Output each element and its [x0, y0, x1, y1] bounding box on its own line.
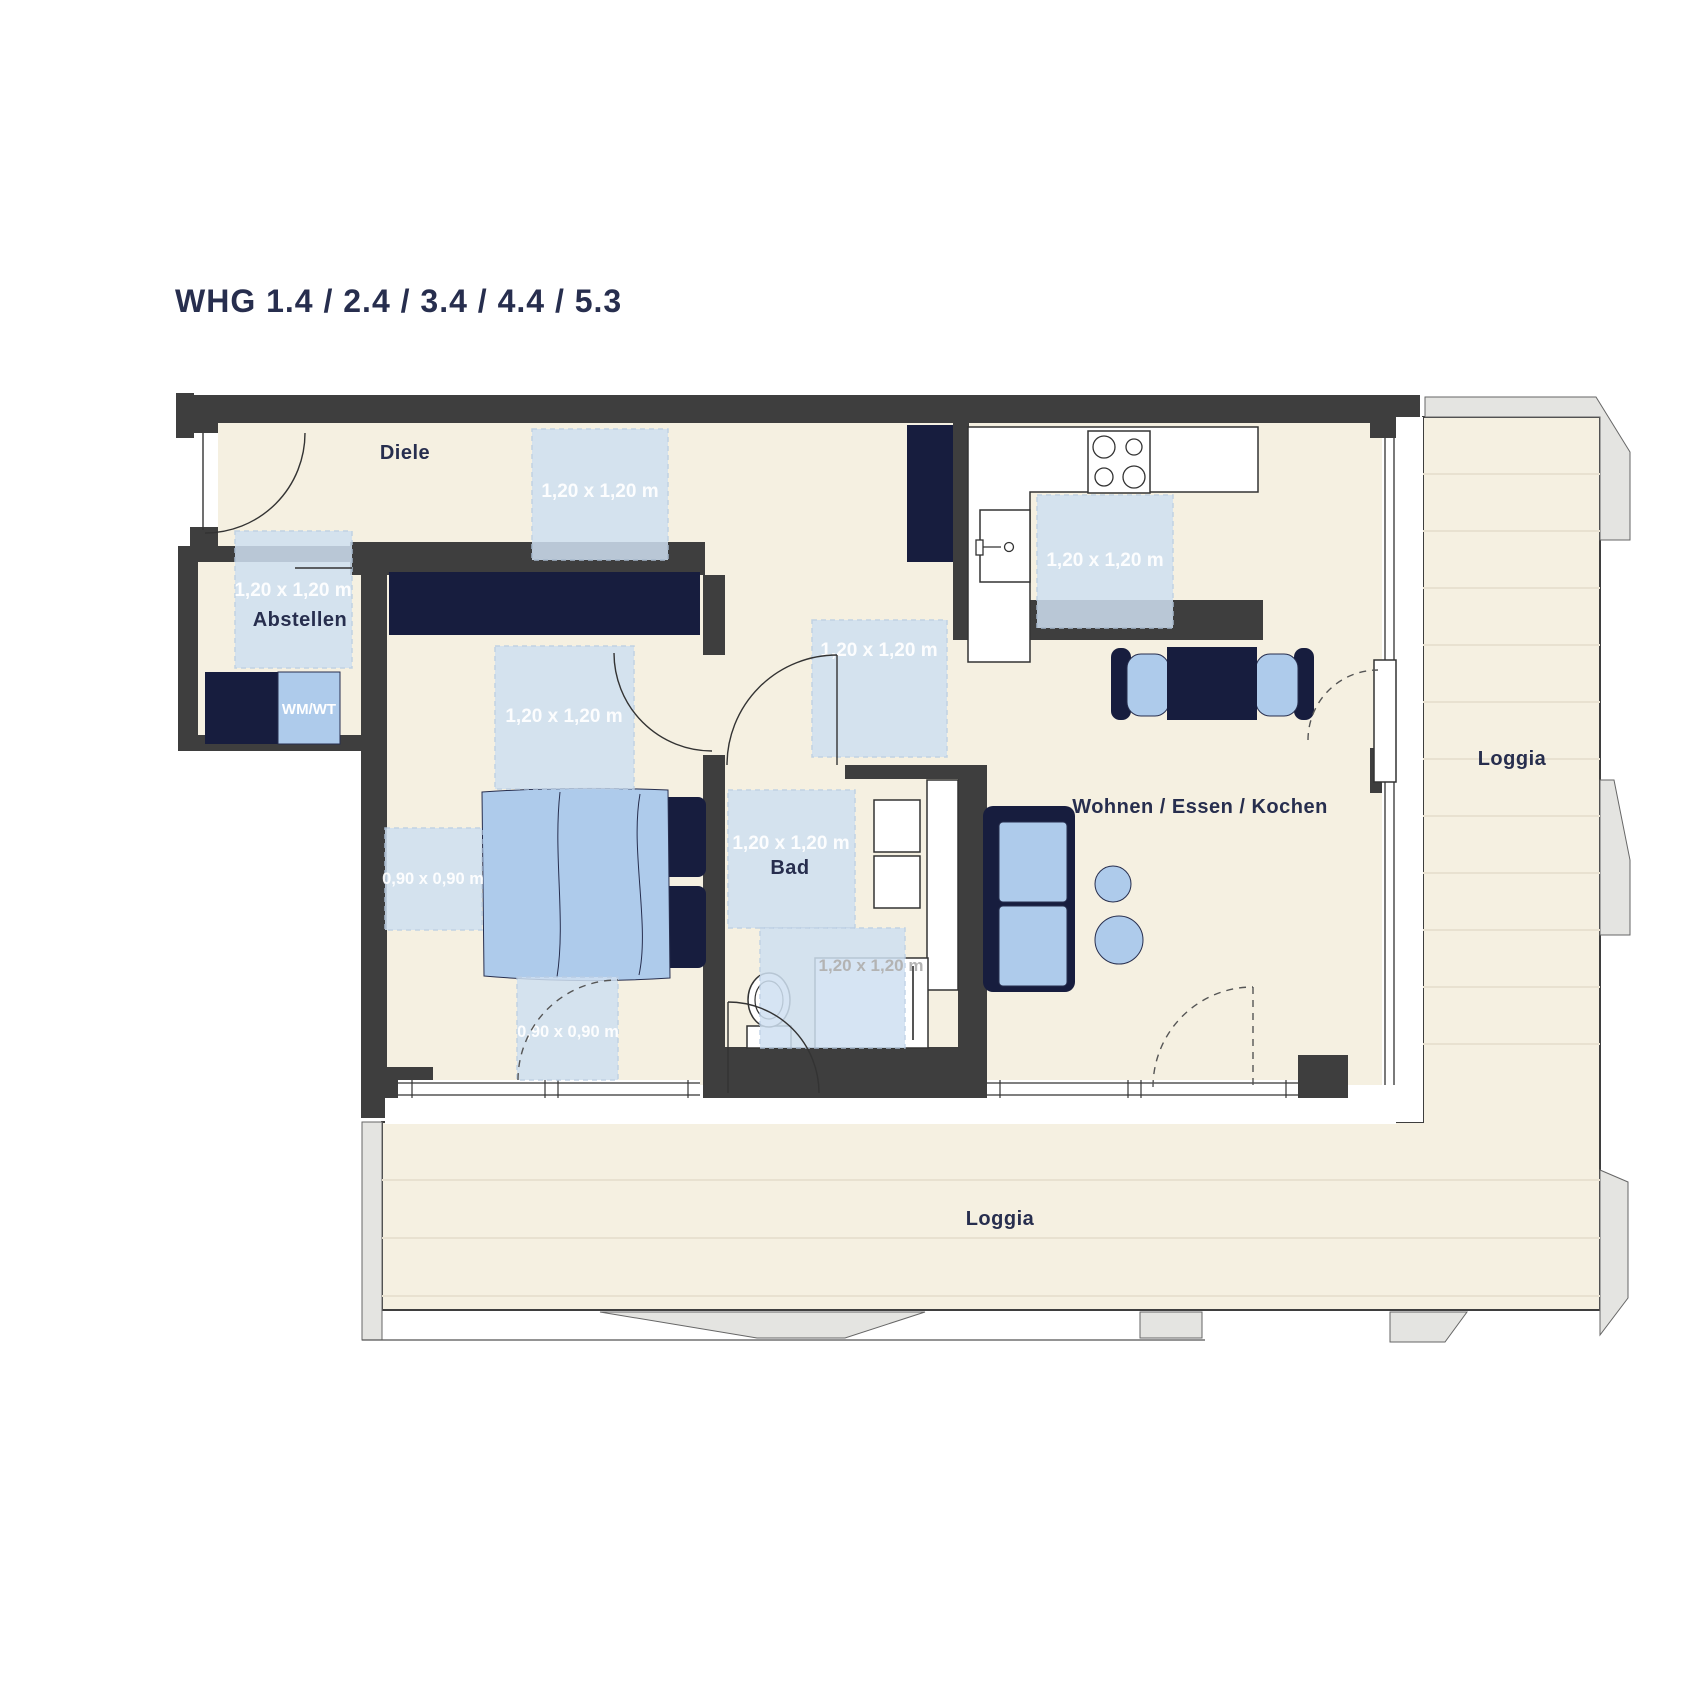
bedroom-clearance-label: 1,20 x 1,20 m [505, 706, 622, 727]
kitchen-clearance-label: 1,20 x 1,20 m [1046, 550, 1163, 571]
wall-niche-west-upper [703, 575, 725, 655]
shower-dim-label: 1,20 x 1,20 m [819, 956, 924, 975]
bad-clearance-label: 1,20 x 1,20 m [732, 833, 849, 854]
right-sill-band [1396, 417, 1423, 1122]
chair-left-seat [1127, 654, 1169, 716]
wall-kitchen-west [953, 423, 969, 608]
label-loggia-right: Loggia [1478, 748, 1547, 770]
label-abstellen: Abstellen [253, 609, 348, 631]
side-table-large [1095, 916, 1143, 964]
balcony-door-panel [1374, 660, 1396, 782]
vanity-counter [927, 780, 958, 990]
side-table-small [1095, 866, 1131, 902]
wardrobe [389, 572, 700, 635]
hall-closet [907, 425, 953, 562]
washer-dryer-dark [205, 672, 278, 744]
wall-left-above-entry [190, 395, 218, 433]
label-wm-wt: WM/WT [282, 701, 336, 718]
bedroom-clearance-90b-label: 0,90 x 0,90 m [517, 1023, 619, 1041]
chair-right-seat [1256, 654, 1298, 716]
sofa-cushion-bottom [999, 906, 1067, 986]
dining-set [1111, 647, 1314, 720]
dining-table [1167, 647, 1257, 720]
wall-abstellen-west [178, 546, 198, 751]
free-labels: 1,20 x 1,20 m [819, 956, 924, 975]
label-loggia-bottom: Loggia [966, 1208, 1035, 1230]
abstellen-clearance-label: 1,20 x 1,20 m [234, 580, 351, 601]
plan-title: WHG 1.4 / 2.4 / 3.4 / 4.4 / 5.3 [175, 283, 622, 319]
bedroom-clearance-90a-label: 0,90 x 0,90 m [382, 870, 484, 888]
washbasin-lower [874, 856, 920, 908]
wall-bad-west [703, 755, 725, 1117]
bottom-sill-band [385, 1098, 1396, 1124]
corridor-clearance-label: 1,20 x 1,20 m [820, 640, 937, 661]
sofa-cushion-top [999, 822, 1067, 902]
diele-clearance-label: 1,20 x 1,20 m [541, 481, 658, 502]
shower-clearance [760, 928, 905, 1048]
wall-left-below-entry [190, 527, 218, 546]
label-diele: Diele [380, 442, 430, 464]
exterior-notch [140, 751, 361, 1122]
washbasin-upper [874, 800, 920, 852]
label-bad: Bad [770, 857, 809, 879]
wall-bedroom-west [361, 546, 387, 1077]
wall-bad-east [958, 765, 987, 1117]
wall-top [190, 395, 1420, 423]
label-living: Wohnen / Essen / Kochen [1072, 796, 1328, 818]
floor-plan: WHG 1.4 / 2.4 / 3.4 / 4.4 / 5.3 [0, 0, 1701, 1701]
loggia-edge-left-strip [362, 1122, 382, 1340]
exterior-block-bottom [1140, 1312, 1202, 1338]
